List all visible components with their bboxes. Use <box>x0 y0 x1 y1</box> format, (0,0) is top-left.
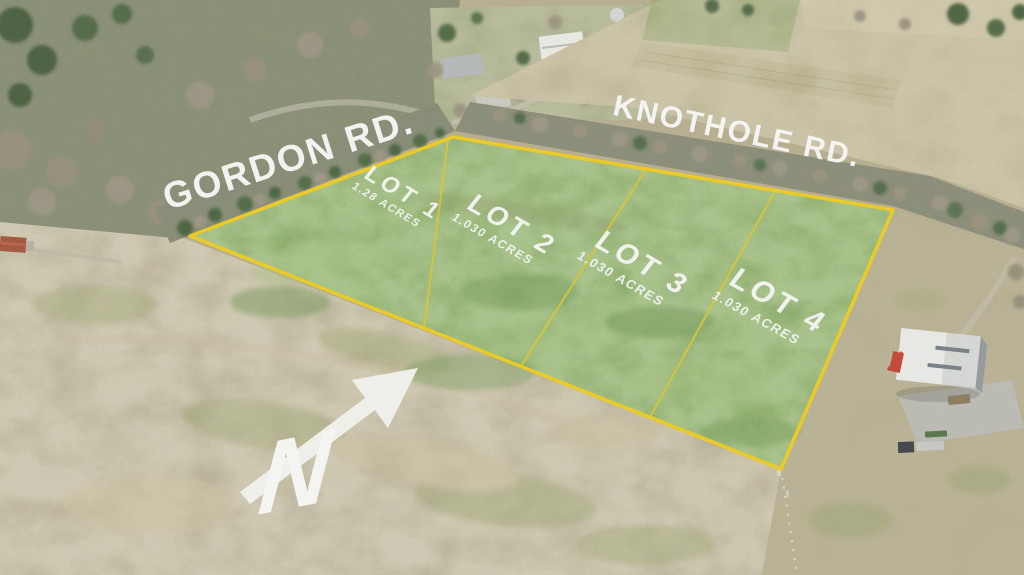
north-label: N <box>255 407 338 537</box>
aerial-photo-canvas: GORDON RD. KNOTHOLE RD. LOT 1 1.28 ACRES… <box>0 0 1024 575</box>
green-equipment <box>925 430 947 437</box>
aerial-photo: GORDON RD. KNOTHOLE RD. LOT 1 1.28 ACRES… <box>0 0 1024 575</box>
